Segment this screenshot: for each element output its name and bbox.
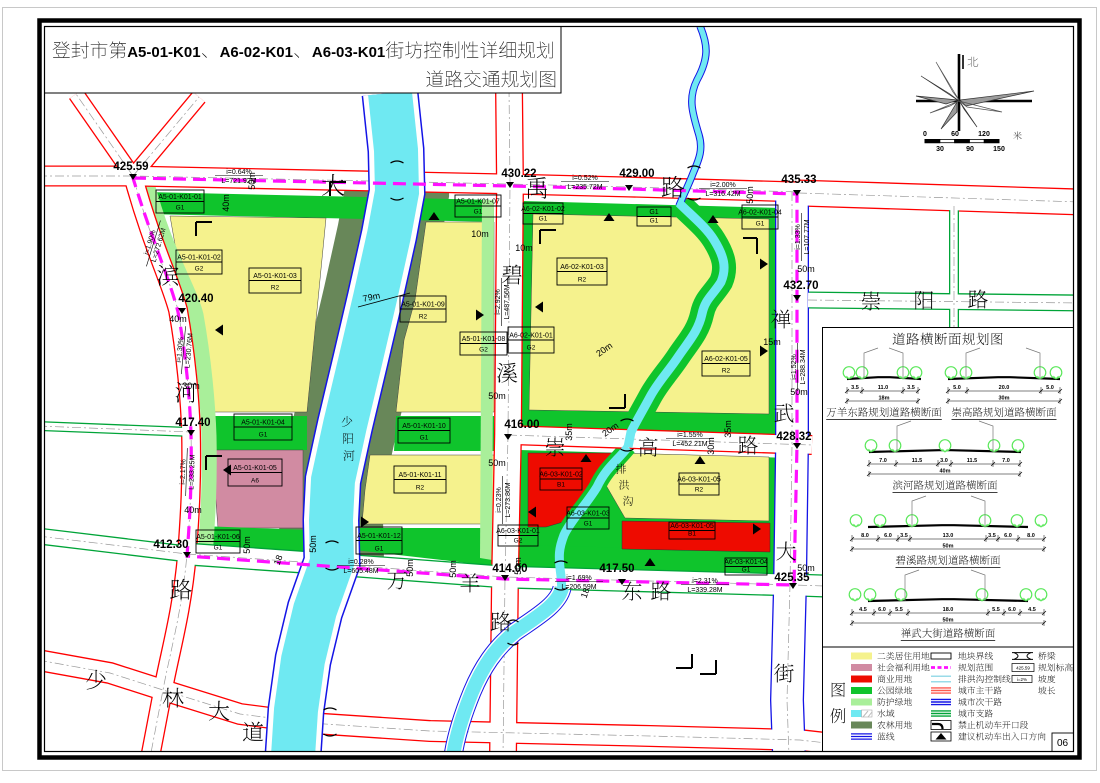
svg-text:G1: G1 (756, 221, 765, 228)
svg-text:A6-03-K01-01: A6-03-K01-01 (496, 528, 540, 535)
svg-text:G1: G1 (539, 216, 548, 223)
svg-text:120: 120 (978, 131, 990, 138)
svg-text:50m: 50m (448, 560, 458, 578)
svg-text:G1: G1 (214, 545, 223, 552)
svg-text:6.0: 6.0 (1004, 533, 1012, 539)
svg-text:4.5: 4.5 (859, 607, 867, 613)
svg-text:435.33: 435.33 (781, 174, 816, 186)
svg-text:A6-02-K01-01: A6-02-K01-01 (509, 333, 553, 340)
svg-text:50m: 50m (308, 535, 318, 553)
svg-text:A6-02-K01-03: A6-02-K01-03 (560, 264, 604, 271)
svg-text:R2: R2 (416, 485, 425, 492)
svg-text:L=288.34M: L=288.34M (800, 349, 807, 384)
svg-text:50m: 50m (797, 264, 815, 274)
svg-text:06: 06 (1057, 738, 1069, 749)
svg-text:0: 0 (923, 131, 927, 138)
svg-text:50m: 50m (942, 618, 953, 624)
svg-text:i=2.31%: i=2.31% (692, 578, 718, 585)
svg-text:G2: G2 (479, 347, 488, 354)
svg-text:B1: B1 (688, 531, 696, 538)
svg-text:A5-01-K01-09: A5-01-K01-09 (401, 302, 445, 309)
svg-text:i=1.55%: i=1.55% (677, 432, 703, 439)
svg-text:A5-01-K01-07: A5-01-K01-07 (456, 199, 500, 206)
svg-text:11.0: 11.0 (878, 385, 888, 391)
svg-text:5.5: 5.5 (895, 607, 903, 613)
svg-text:13.0: 13.0 (943, 533, 954, 539)
svg-text:60: 60 (951, 131, 959, 138)
svg-text:5.5: 5.5 (992, 607, 1000, 613)
svg-text:3.5: 3.5 (988, 533, 996, 539)
svg-text:429.00: 429.00 (619, 168, 654, 180)
svg-text:A5-01-K01-05: A5-01-K01-05 (233, 465, 277, 472)
svg-text:50m: 50m (745, 186, 755, 204)
svg-text:L=339.28M: L=339.28M (687, 587, 722, 594)
svg-text:L=316.42M: L=316.42M (705, 191, 740, 198)
svg-text:A6-03-K01-02: A6-03-K01-02 (539, 472, 583, 479)
svg-text:A6: A6 (251, 478, 259, 485)
svg-text:A5-01-K01-08: A5-01-K01-08 (462, 336, 506, 343)
svg-text:A6-03-K01-03: A6-03-K01-03 (566, 511, 610, 518)
svg-text:90: 90 (966, 146, 974, 153)
svg-text:20.0: 20.0 (999, 385, 1010, 391)
svg-text:L=273.86M: L=273.86M (505, 482, 512, 517)
svg-text:i=0.52%: i=0.52% (572, 175, 598, 182)
svg-text:416.00: 416.00 (504, 419, 539, 431)
svg-text:50m: 50m (488, 458, 506, 468)
svg-text:50m: 50m (488, 391, 506, 401)
svg-text:150: 150 (993, 146, 1005, 153)
svg-text:11.5: 11.5 (912, 458, 922, 464)
svg-text:18m: 18m (878, 396, 889, 402)
svg-text:A6-03-K01-04: A6-03-K01-04 (724, 559, 768, 566)
svg-text:8.0: 8.0 (861, 533, 869, 539)
svg-text:6.0: 6.0 (884, 533, 892, 539)
svg-text:10m: 10m (471, 229, 489, 239)
svg-text:A5-01-K01: A5-01-K01 (127, 44, 200, 61)
svg-text:A6-03-K01-05: A6-03-K01-05 (670, 523, 714, 530)
svg-text:11.5: 11.5 (967, 458, 977, 464)
svg-text:3.0: 3.0 (940, 458, 948, 464)
svg-text:G1: G1 (649, 209, 658, 216)
svg-text:35m: 35m (564, 423, 574, 441)
svg-text:15m: 15m (763, 337, 781, 347)
svg-text:L=107.77M: L=107.77M (804, 219, 811, 254)
svg-text:428.32: 428.32 (776, 431, 811, 443)
svg-text:35m: 35m (723, 420, 733, 438)
svg-text:R2: R2 (578, 277, 587, 284)
svg-text:B1: B1 (557, 482, 565, 489)
svg-text:40m: 40m (169, 314, 187, 324)
svg-text:A5-01-K01-11: A5-01-K01-11 (398, 472, 441, 479)
svg-text:420.40: 420.40 (178, 293, 213, 305)
svg-text:50m: 50m (942, 544, 953, 550)
svg-text:G2: G2 (195, 266, 204, 273)
svg-text:425.59: 425.59 (113, 161, 148, 173)
svg-text:A5-01-K01-02: A5-01-K01-02 (177, 255, 221, 262)
svg-text:50m: 50m (247, 172, 257, 190)
svg-text:G1: G1 (650, 218, 659, 225)
svg-text:7.0: 7.0 (1002, 458, 1010, 464)
svg-text:i=0.23%: i=0.23% (496, 487, 503, 513)
svg-text:R2: R2 (722, 368, 731, 375)
svg-text:3.5: 3.5 (907, 385, 915, 391)
svg-text:G1: G1 (176, 205, 185, 212)
svg-text:50m: 50m (405, 559, 415, 577)
svg-text:50m: 50m (513, 557, 523, 575)
svg-text:G1: G1 (742, 567, 751, 574)
svg-text:i=2%: i=2% (1017, 677, 1027, 682)
svg-text:A5-01-K01-01: A5-01-K01-01 (158, 194, 202, 201)
svg-text:425.59: 425.59 (1016, 666, 1030, 671)
svg-text:G2: G2 (514, 538, 523, 545)
svg-text:G1: G1 (584, 521, 593, 528)
svg-text:5.0: 5.0 (953, 385, 961, 391)
svg-text:432.70: 432.70 (783, 280, 818, 292)
svg-text:417.50: 417.50 (599, 563, 634, 575)
svg-text:30m: 30m (182, 381, 200, 391)
svg-text:i=2.92%: i=2.92% (495, 289, 502, 315)
svg-text:3.5: 3.5 (851, 385, 859, 391)
svg-text:6.0: 6.0 (1008, 607, 1016, 613)
svg-text:i=1.33%: i=1.33% (795, 224, 802, 250)
svg-text:6.0: 6.0 (878, 607, 886, 613)
svg-text:R2: R2 (419, 314, 428, 321)
svg-text:A5-01-K01-10: A5-01-K01-10 (402, 423, 446, 430)
svg-text:4.5: 4.5 (1028, 607, 1036, 613)
svg-text:A6-02-K01-04: A6-02-K01-04 (738, 210, 782, 217)
svg-text:40m: 40m (939, 469, 950, 475)
svg-text:G1: G1 (259, 432, 268, 439)
svg-text:430.22: 430.22 (501, 168, 536, 180)
svg-text:A5-01-K01-03: A5-01-K01-03 (253, 273, 297, 280)
svg-text:A5-01-K01-12: A5-01-K01-12 (357, 533, 401, 540)
svg-text:A6-02-K01: A6-02-K01 (220, 44, 293, 61)
svg-text:G2: G2 (527, 345, 536, 352)
svg-text:i=0.28%: i=0.28% (348, 559, 374, 566)
svg-text:L=487.56M: L=487.56M (504, 284, 511, 319)
svg-text:50m: 50m (797, 563, 815, 573)
svg-text:40m: 40m (221, 194, 231, 212)
svg-text:40m: 40m (184, 505, 202, 515)
svg-text:R2: R2 (695, 487, 704, 494)
svg-text:G1: G1 (474, 209, 483, 216)
svg-text:425.35: 425.35 (774, 572, 810, 584)
svg-text:L=233.25M: L=233.25M (188, 454, 196, 490)
svg-text:A6-02-K01-02: A6-02-K01-02 (521, 206, 565, 213)
svg-text:18.0: 18.0 (943, 607, 954, 613)
svg-text:30: 30 (936, 146, 944, 153)
svg-text:G1: G1 (420, 435, 429, 442)
svg-text:10m: 10m (515, 243, 533, 253)
svg-text:8.0: 8.0 (1027, 533, 1035, 539)
svg-text:30m: 30m (706, 437, 716, 455)
svg-text:L=452.21M: L=452.21M (672, 441, 707, 448)
svg-text:L=235.72M: L=235.72M (567, 184, 602, 191)
svg-text:50m: 50m (790, 387, 808, 397)
svg-text:5.0: 5.0 (1046, 385, 1054, 391)
svg-text:R2: R2 (271, 285, 280, 292)
svg-text:G1: G1 (375, 546, 384, 553)
svg-text:A6-03-K01-05: A6-03-K01-05 (677, 477, 721, 484)
svg-text:A6-03-K01: A6-03-K01 (312, 44, 385, 61)
svg-text:50m: 50m (242, 536, 252, 554)
svg-text:A6-02-K01-05: A6-02-K01-05 (704, 356, 748, 363)
svg-text:7.0: 7.0 (879, 458, 887, 464)
svg-text:412.30: 412.30 (153, 539, 188, 551)
svg-text:i=1.52%: i=1.52% (791, 354, 798, 380)
svg-text:A5-01-K01-04: A5-01-K01-04 (241, 420, 285, 427)
svg-text:L=605.48M: L=605.48M (343, 568, 378, 575)
svg-text:417.40: 417.40 (175, 417, 210, 429)
svg-text:A5-01-K01-06: A5-01-K01-06 (196, 534, 240, 541)
svg-text:i=2.00%: i=2.00% (710, 182, 736, 189)
svg-text:i=1.69%: i=1.69% (566, 575, 592, 582)
svg-text:3.5: 3.5 (900, 533, 908, 539)
svg-text:30m: 30m (998, 396, 1009, 402)
